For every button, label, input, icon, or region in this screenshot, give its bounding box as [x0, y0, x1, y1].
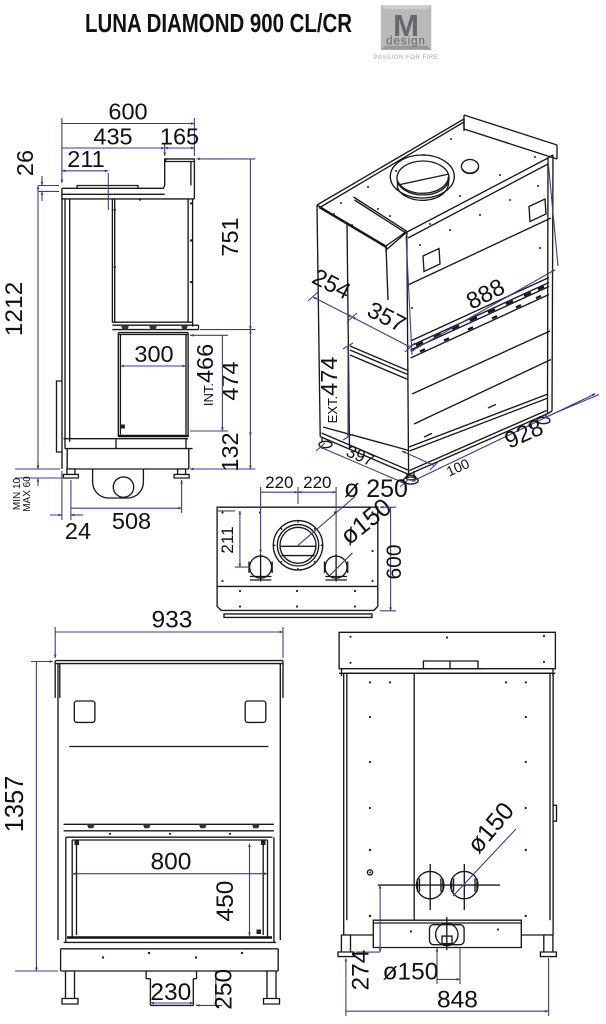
- svg-text:800: 800: [150, 849, 191, 876]
- svg-text:design: design: [386, 36, 426, 48]
- svg-text:250: 250: [211, 969, 238, 1010]
- svg-text:848: 848: [437, 987, 478, 1014]
- svg-text:132: 132: [217, 432, 243, 471]
- svg-text:933: 933: [152, 607, 193, 634]
- svg-text:751: 751: [217, 217, 243, 256]
- svg-text:INT.466: INT.466: [192, 344, 218, 406]
- svg-text:474: 474: [217, 361, 243, 400]
- svg-text:600: 600: [383, 544, 406, 579]
- svg-text:ø150: ø150: [462, 797, 520, 859]
- svg-text:26: 26: [12, 150, 38, 176]
- svg-text:1212: 1212: [1, 282, 28, 337]
- svg-text:ø150: ø150: [383, 959, 439, 986]
- svg-text:220: 220: [303, 473, 331, 492]
- svg-text:508: 508: [112, 508, 151, 534]
- svg-text:MAX 60: MAX 60: [22, 476, 33, 512]
- svg-text:LUNA DIAMOND 900 CL/CR: LUNA DIAMOND 900 CL/CR: [85, 8, 352, 38]
- svg-text:24: 24: [65, 518, 91, 544]
- svg-text:100: 100: [444, 455, 472, 479]
- svg-text:600: 600: [108, 99, 147, 125]
- svg-text:211: 211: [218, 526, 237, 553]
- svg-text:357: 357: [363, 296, 410, 337]
- svg-text:1357: 1357: [1, 776, 29, 833]
- svg-text:450: 450: [212, 881, 239, 922]
- svg-text:397: 397: [343, 442, 377, 471]
- svg-text:274: 274: [348, 950, 375, 991]
- svg-text:PASSION FOR FIRE: PASSION FOR FIRE: [374, 55, 439, 61]
- svg-text:230: 230: [150, 979, 191, 1006]
- svg-text:165: 165: [160, 124, 199, 150]
- svg-text:300: 300: [134, 341, 173, 367]
- svg-text:211: 211: [67, 146, 104, 172]
- svg-text:220: 220: [265, 473, 293, 492]
